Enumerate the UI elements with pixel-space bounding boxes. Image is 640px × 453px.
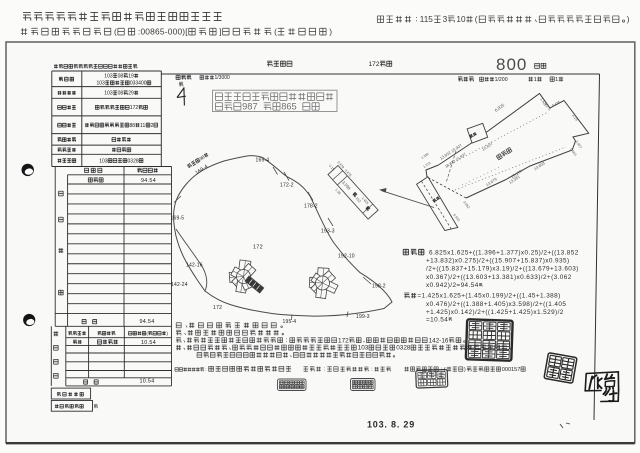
svg-text:08: 08	[118, 73, 124, 79]
svg-text:172: 172	[338, 337, 349, 344]
svg-text:6.825x1.625+((1.396+1.377)x0.2: 6.825x1.625+((1.396+1.377)x0.25)/2+((13.…	[429, 250, 579, 257]
svg-text:198-2: 198-2	[372, 284, 386, 290]
svg-text:103: 103	[104, 73, 113, 79]
svg-text:0328: 0328	[128, 158, 139, 164]
svg-text:2: 2	[151, 123, 154, 129]
svg-text:169-4: 169-4	[256, 158, 270, 164]
svg-text:(: (	[274, 27, 277, 37]
svg-text:]: ]	[219, 27, 222, 37]
svg-text:): )	[464, 367, 466, 373]
svg-text:199-3: 199-3	[356, 314, 370, 320]
svg-text:): )	[627, 15, 630, 24]
svg-text:(: (	[475, 15, 478, 24]
svg-text:193-3: 193-3	[321, 229, 335, 235]
svg-text:142-16: 142-16	[186, 263, 203, 269]
svg-text:+1.425)x0.142)/2+((1.425+1.425: +1.425)x0.142)/2+((1.425+1.425)x1.529)/2	[426, 309, 564, 316]
svg-text:94.54: 94.54	[141, 178, 156, 184]
svg-text:1: 1	[534, 77, 537, 83]
svg-text:103: 103	[97, 81, 106, 87]
svg-text:08: 08	[118, 91, 124, 97]
svg-text:3: 3	[443, 15, 448, 24]
svg-text:172: 172	[369, 61, 380, 68]
svg-text:172: 172	[130, 105, 139, 111]
svg-text:987: 987	[242, 102, 258, 112]
svg-text:033400: 033400	[130, 81, 147, 87]
svg-text:+13.832)x0.275)/2+((15.907+15.: +13.832)x0.275)/2+((15.907+15.837)x0.935…	[426, 258, 570, 265]
svg-text:94.54: 94.54	[140, 319, 155, 325]
svg-text:(: (	[114, 27, 117, 37]
svg-text:88: 88	[130, 123, 136, 129]
svg-text:115: 115	[420, 15, 433, 24]
svg-text:): )	[329, 27, 332, 37]
svg-text::00865-000)[: :00865-000)[	[138, 27, 188, 37]
svg-text:11: 11	[140, 123, 145, 129]
svg-text:103: 103	[104, 91, 113, 97]
svg-text:=1.425x1.625+(1.45x0.199)/2+((: =1.425x1.625+(1.45x0.199)/2+((1.45+1.388…	[417, 293, 560, 300]
svg-text:800: 800	[496, 55, 527, 74]
svg-text:10.54: 10.54	[141, 340, 156, 346]
svg-text:0328: 0328	[396, 345, 411, 352]
svg-text:172: 172	[213, 305, 222, 311]
svg-text:865: 865	[281, 102, 297, 112]
svg-text:169-5: 169-5	[171, 216, 185, 222]
svg-text:10.54: 10.54	[140, 379, 155, 385]
svg-text:/2+((15.837+15.179)x3.19)/2+((: /2+((15.837+15.179)x3.19)/2+((13.679+13.…	[426, 266, 579, 273]
svg-text:195-4: 195-4	[283, 319, 297, 325]
svg-text:x0.367)/2+((13.603+13.381)x0.6: x0.367)/2+((13.603+13.381)x0.633)/2+(3.0…	[426, 274, 572, 281]
svg-text:142-24: 142-24	[171, 282, 188, 288]
svg-text:x0.942)/2=94.54: x0.942)/2=94.54	[426, 282, 479, 289]
svg-text:172: 172	[253, 245, 263, 251]
svg-text:103. 8. 29: 103. 8. 29	[367, 420, 415, 430]
svg-text:103: 103	[99, 158, 108, 164]
svg-text:000157: 000157	[502, 367, 521, 373]
svg-text:29: 29	[128, 91, 134, 97]
svg-text:1/3000: 1/3000	[215, 75, 231, 81]
svg-text:=10.54: =10.54	[426, 316, 448, 323]
svg-text:178-2: 178-2	[304, 204, 318, 210]
svg-text:142-16: 142-16	[429, 337, 449, 344]
svg-text:172-2: 172-2	[280, 183, 294, 189]
svg-text:1: 1	[555, 77, 558, 83]
svg-text:192-10: 192-10	[338, 254, 355, 260]
svg-text:10: 10	[456, 15, 466, 24]
svg-text:x0.476)/2+((1.388+1.405)x3.598: x0.476)/2+((1.388+1.405)x3.598)/2+((1.40…	[426, 301, 566, 308]
svg-text:1/200: 1/200	[495, 77, 508, 83]
svg-text:103: 103	[358, 345, 369, 352]
svg-text:19: 19	[128, 73, 134, 79]
